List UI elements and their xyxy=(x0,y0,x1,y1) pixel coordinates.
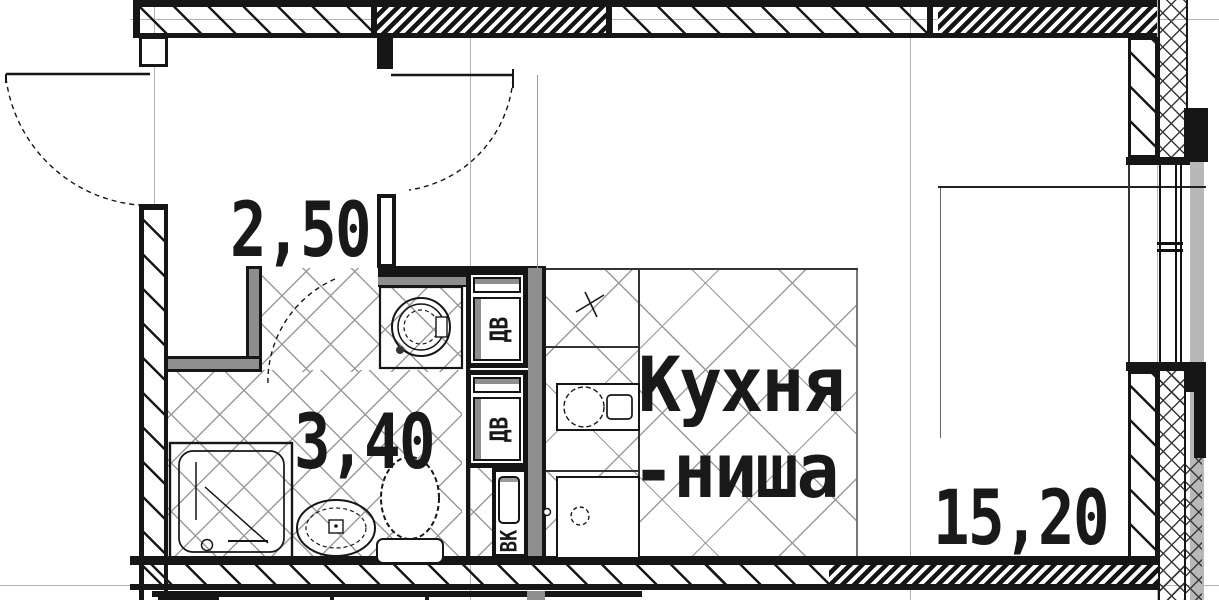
lower-unit-tick xyxy=(425,591,429,600)
window-transom xyxy=(1157,249,1183,252)
lower-unit-fragment-gray xyxy=(527,591,545,600)
wall-top-innerline xyxy=(133,33,1157,38)
lower-unit-tick xyxy=(215,591,219,600)
wall-top-segment-dense xyxy=(938,7,1157,33)
window-zone-line xyxy=(938,186,1206,188)
wall-joint xyxy=(927,7,933,33)
kitchen-counter-divider xyxy=(546,346,639,348)
wall-bottom-cap xyxy=(130,584,1158,590)
door-jamb xyxy=(377,194,396,268)
window-glazing-line xyxy=(1159,165,1161,365)
kitchen-name-line1: Кухня xyxy=(638,347,844,423)
shaft-panel xyxy=(473,377,521,393)
shaft-panel xyxy=(473,277,521,293)
wall-top-cap xyxy=(133,0,1157,7)
wall-insulation-strip xyxy=(1186,458,1202,600)
wall-bottom-segment xyxy=(139,565,829,585)
wall-top-segment xyxy=(617,7,927,33)
wall-bottom-segment-dense xyxy=(829,565,1158,585)
partition-wall-horizontal xyxy=(165,356,262,372)
bathroom-area-label: 3,40 xyxy=(294,404,434,480)
axis-line-vertical xyxy=(910,0,911,600)
window-sill xyxy=(1126,362,1190,371)
zone-line-vertical xyxy=(940,188,941,438)
wall-top-segment-dense xyxy=(377,7,606,33)
lower-unit-fragment xyxy=(158,592,216,600)
kitchen-name-line2: -ниша xyxy=(632,433,838,509)
door-jamb xyxy=(377,36,393,69)
window-transom xyxy=(1157,242,1183,245)
wall-corner xyxy=(133,7,140,36)
window-glazing-line xyxy=(1180,165,1182,365)
bathroom-entry-floor-tiles xyxy=(262,268,380,372)
kitchen-zone-top-line xyxy=(546,268,858,270)
wall-corner-piece xyxy=(1184,108,1208,162)
wall-corner-piece xyxy=(1184,362,1206,392)
shaft-label: ВК xyxy=(499,530,521,553)
wall-strip xyxy=(1194,392,1206,458)
window-pier-top xyxy=(1128,37,1158,158)
kitchen-counter-divider xyxy=(546,470,639,472)
bathroom-wall-lining xyxy=(378,277,468,287)
hallway-area-label: 2,50 xyxy=(230,192,370,268)
wall-insulation-bottom xyxy=(1158,371,1186,600)
shaft-floor-sliver xyxy=(470,468,492,556)
service-wall-gray xyxy=(528,268,542,560)
entrance-door xyxy=(6,74,150,205)
shaft-panel xyxy=(498,476,520,524)
shaft-box-3: ВК xyxy=(492,468,528,558)
shaft-box-2: ДВ xyxy=(466,370,528,468)
wall-joint xyxy=(606,7,612,33)
window-pier-bottom xyxy=(1128,371,1158,561)
service-wall-edge xyxy=(542,268,546,560)
shaft-label: ДВ xyxy=(487,317,512,343)
wall-top-segment xyxy=(133,7,371,33)
floor-plan: ДВ ДВ ВК 2,50 3,40 Кухня -ниша 15,20 xyxy=(0,0,1219,600)
window-glazing-line xyxy=(1175,165,1177,365)
lower-unit-tick xyxy=(330,591,334,600)
wall-left xyxy=(139,204,168,600)
kitchen-zone-right-line xyxy=(856,270,858,556)
shaft-label: ДВ xyxy=(487,417,512,443)
bathroom-floor-tiles xyxy=(380,287,462,372)
lower-unit-fragment xyxy=(152,591,642,597)
wall-stub xyxy=(139,36,168,67)
living-room-area-label: 15,20 xyxy=(933,480,1108,556)
window-sill xyxy=(1126,157,1190,165)
window-reveal-line xyxy=(1128,165,1130,365)
partition-wall-vertical xyxy=(246,266,262,366)
room-zone-line xyxy=(537,75,538,268)
shaft-box-1: ДВ xyxy=(466,270,528,368)
room-door xyxy=(391,69,513,190)
